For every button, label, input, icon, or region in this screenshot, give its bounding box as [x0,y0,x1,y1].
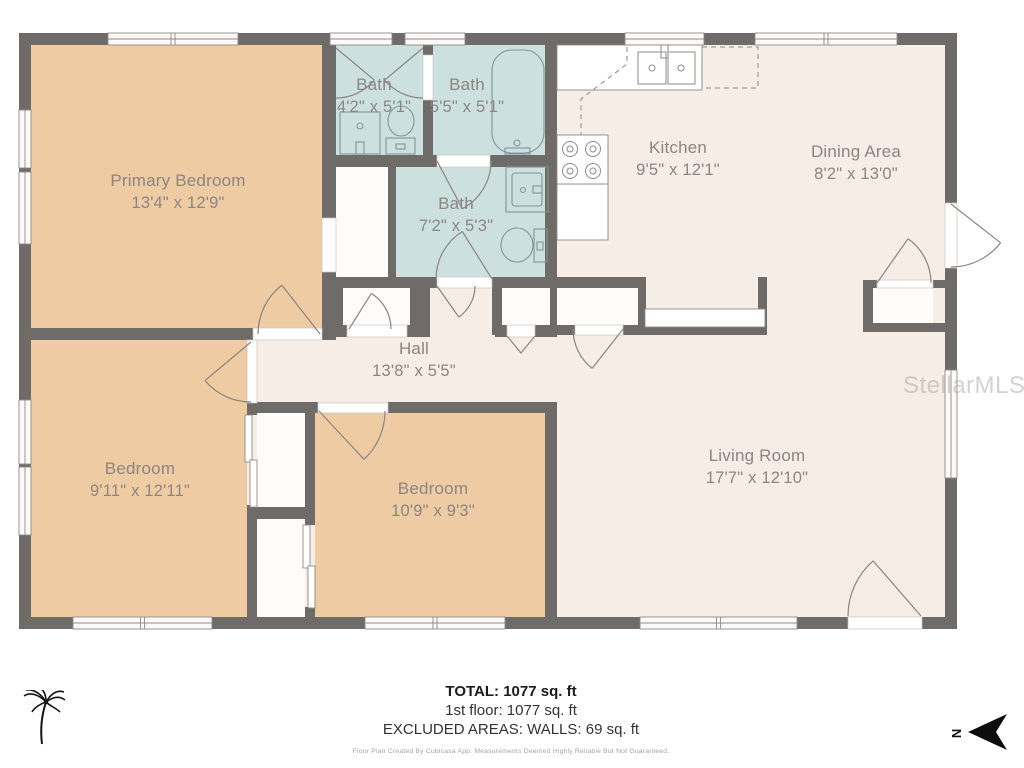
room-label-bedroom-left: Bedroom 9'11" x 12'11" [90,460,190,500]
room-label-bath-2: Bath 5'5" x 5'1" [430,76,504,116]
room-label-primary-bedroom: Primary Bedroom 13'4" x 12'9" [110,172,245,212]
hall-closet-b-floor [557,288,638,325]
door-swing [951,204,1001,267]
north-label: N [949,729,964,738]
room-dims: 9'5" x 12'1" [636,161,720,179]
wall [305,402,315,525]
floor-plan-page: Primary Bedroom 13'4" x 12'9" Bath 4'2" … [0,0,1024,768]
room-dims: 9'11" x 12'11" [90,482,190,500]
wall [388,167,396,277]
primary-closet-floor [336,167,388,277]
wall [19,328,247,340]
disclaimer-text: Floor Plan Created By Cubicasa App. Meas… [353,748,670,755]
room-dims: 7'2" x 5'3" [419,217,493,235]
room-label-hall: Hall 13'8" x 5'5" [372,340,456,380]
room-name: Primary Bedroom [110,172,245,191]
wall [645,327,767,335]
room-label-bath-3: Bath 7'2" x 5'3" [419,195,493,235]
door-opening [322,218,336,272]
wall [863,323,945,332]
door-opening [877,280,933,288]
door-opening [247,340,257,403]
room-label-bedroom-middle: Bedroom 10'9" x 9'3" [391,480,475,520]
room-name: Bedroom [391,480,475,499]
wall [933,280,945,288]
kitchen-counter [557,184,608,240]
door-opening [575,325,623,335]
wall [495,325,507,337]
entry-closet-floor [873,288,933,323]
door-opening [318,403,388,413]
room-dims: 4'2" x 5'1" [337,98,411,116]
wall [545,403,557,617]
linen-closet-floor [343,288,410,325]
wall [945,33,957,629]
room-dims: 17'7" x 12'10" [706,469,808,487]
room-name: Bath [337,76,411,95]
room-dims: 13'4" x 12'9" [110,194,245,212]
room-dims: 5'5" x 5'1" [430,98,504,116]
sliding-door-panel [245,415,252,462]
closet-left-top-floor [257,413,305,507]
door-opening [848,617,922,629]
door-opening [507,325,535,337]
first-floor-area-text: 1st floor: 1077 sq. ft [353,701,670,720]
room-label-bath-1: Bath 4'2" x 5'1" [337,76,411,116]
excluded-area-text: EXCLUDED AREAS: WALLS: 69 sq. ft [353,720,670,739]
door-opening [253,328,322,340]
room-dims: 10'9" x 9'3" [391,502,475,520]
door-opening [437,277,492,288]
wall [322,288,343,325]
palm-tree-icon [22,690,66,748]
wall [502,277,645,288]
sliding-door-panel [308,566,315,608]
door-opening [347,325,407,337]
wall [407,325,430,337]
room-name: Kitchen [636,139,720,158]
room-dims: 8'2" x 13'0" [811,165,901,183]
wall [322,325,347,337]
room-name: Hall [372,340,456,359]
area-summary: TOTAL: 1077 sq. ft 1st floor: 1077 sq. f… [353,682,670,755]
room-label-living-room: Living Room 17'7" x 12'10" [706,447,808,487]
north-arrow-icon: N [944,706,1014,756]
room-label-dining-area: Dining Area 8'2" x 13'0" [811,143,901,183]
wall [336,155,437,167]
door-opening [437,155,490,167]
breakfast-bar-counter [645,309,765,327]
wall [247,505,257,617]
door-opening [945,203,957,268]
hall-closet-a-floor [502,288,550,325]
floor-plan-drawing [0,0,1024,768]
sliding-door-panel [303,525,310,568]
wall [247,507,315,519]
closet-left-bottom-floor [257,519,305,617]
wall [623,325,645,335]
room-name: Dining Area [811,143,901,162]
total-area-text: TOTAL: 1077 sq. ft [353,682,670,701]
wall [388,402,557,413]
wall [423,45,433,55]
wall [550,288,557,325]
wall [247,403,257,415]
room-name: Bath [419,195,493,214]
room-label-kitchen: Kitchen 9'5" x 12'1" [636,139,720,179]
wall [535,325,557,337]
stellar-mls-watermark: StellarMLS [903,372,1024,400]
room-name: Bedroom [90,460,190,479]
wall [322,277,437,288]
sliding-door-panel [250,460,257,507]
wall [410,288,430,325]
room-name: Bath [430,76,504,95]
wall [557,325,575,335]
room-name: Living Room [706,447,808,466]
room-dims: 13'8" x 5'5" [372,362,456,380]
wall [305,607,315,617]
